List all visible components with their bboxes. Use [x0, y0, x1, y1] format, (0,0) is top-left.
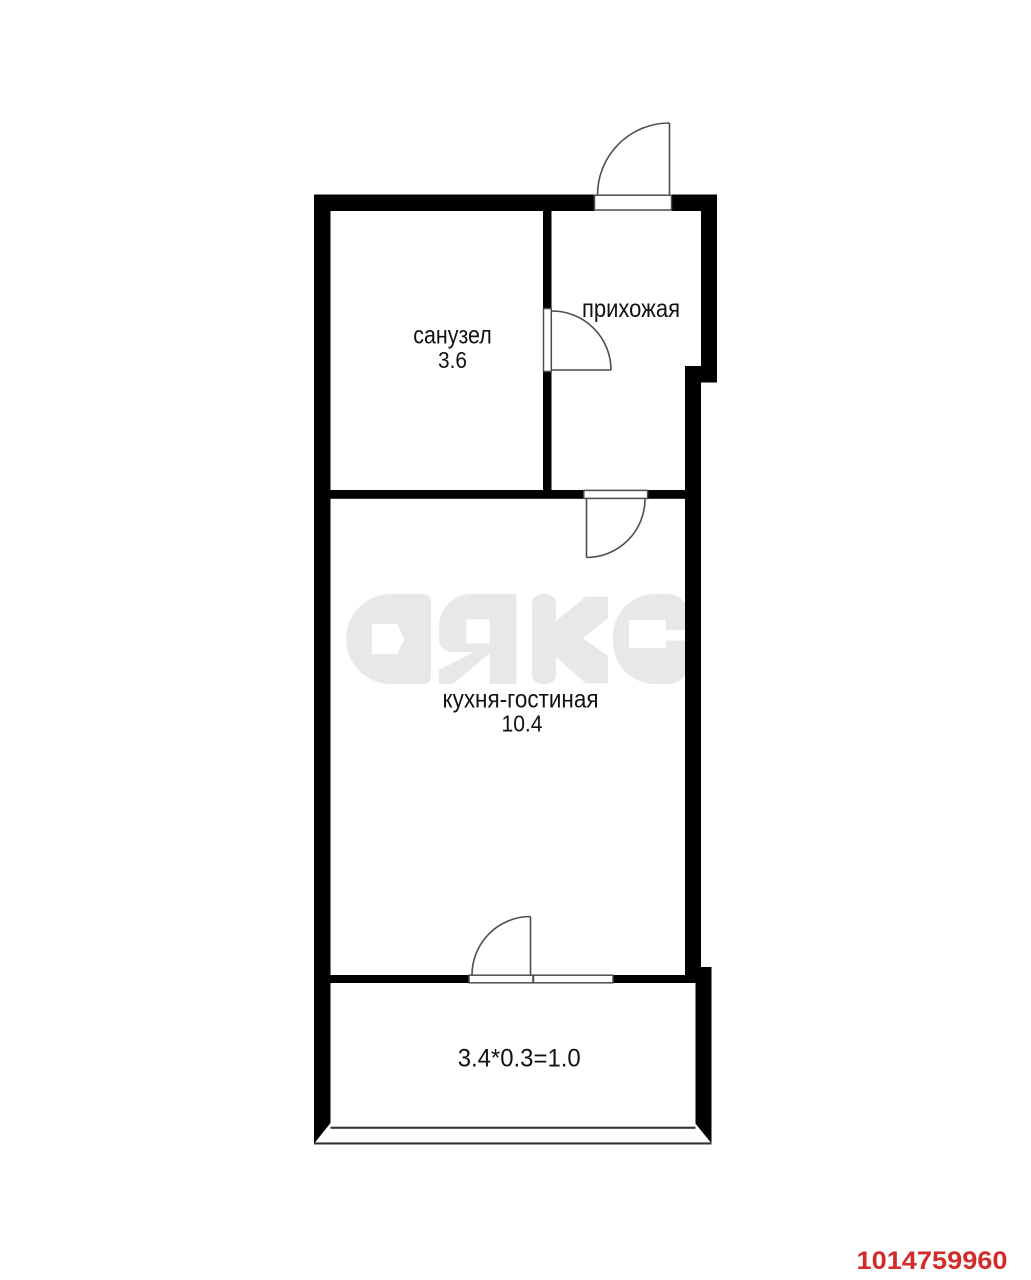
svg-text:3.6: 3.6 [438, 347, 467, 373]
svg-text:10.4: 10.4 [502, 711, 543, 737]
svg-text:1014759960: 1014759960 [857, 1247, 1008, 1275]
svg-text:санузел: санузел [413, 322, 492, 350]
svg-text:прихожая: прихожая [582, 295, 680, 323]
svg-text:кухня-гостиная: кухня-гостиная [443, 686, 599, 714]
svg-text:3.4*0.3=1.0: 3.4*0.3=1.0 [458, 1045, 581, 1073]
